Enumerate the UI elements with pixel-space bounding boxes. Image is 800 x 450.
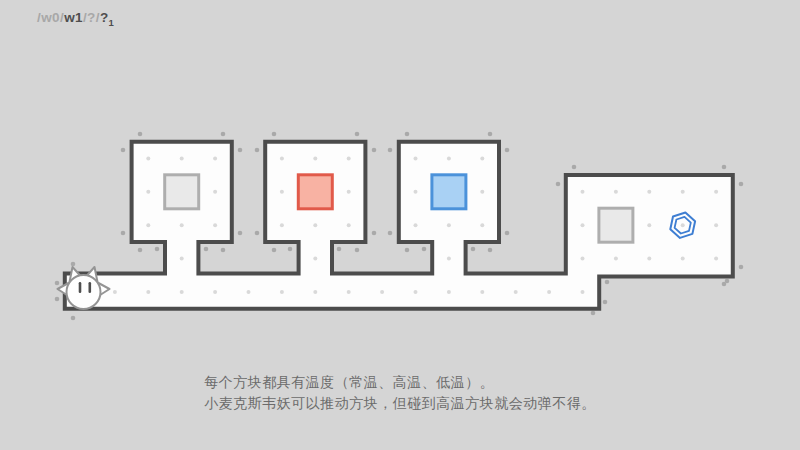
grid-dot-outer [603, 300, 608, 305]
grid-dot-outer [121, 148, 126, 153]
breadcrumb: /w0/w1/?/?1 [37, 10, 114, 28]
demon-eye-left [79, 282, 82, 293]
grid-dot-outer [372, 231, 377, 236]
grid-dot-floor [146, 190, 150, 194]
grid-dot-floor [714, 223, 718, 227]
grid-dot-floor [180, 156, 184, 160]
grid-dot-floor [447, 223, 451, 227]
grid-dot-floor [347, 156, 351, 160]
grid-dot-outer [471, 247, 476, 252]
grid-dot-outer [722, 165, 727, 170]
grid-dot-outer [505, 231, 510, 236]
breadcrumb-segment-current: ? [100, 10, 109, 25]
grid-dot-floor [714, 257, 718, 261]
grid-dot-outer [272, 248, 277, 253]
grid-dot-outer [238, 148, 243, 153]
tutorial-text: 每个方块都具有温度（常温、高温、低温）。 小麦克斯韦妖可以推动方块，但碰到高温方… [0, 372, 800, 414]
grid-dot-floor [347, 290, 351, 294]
block-normal-1[interactable] [165, 175, 199, 209]
grid-dot-floor [547, 290, 551, 294]
grid-dot-floor [414, 156, 418, 160]
grid-dot-outer [71, 262, 76, 267]
grid-dot-outer [739, 182, 744, 187]
grid-dot-floor [614, 190, 618, 194]
grid-dot-floor [681, 257, 685, 261]
grid-dot-outer [255, 148, 260, 153]
grid-dot-floor [347, 223, 351, 227]
grid-dot-outer [221, 132, 226, 137]
grid-dot-outer [422, 247, 427, 252]
grid-dot-floor [647, 190, 651, 194]
grid-dot-outer [405, 132, 410, 137]
grid-dot-floor [280, 190, 284, 194]
grid-dot-outer [725, 279, 730, 284]
grid-dot-floor [414, 190, 418, 194]
grid-dot-outer [55, 281, 60, 286]
grid-dot-floor [714, 190, 718, 194]
grid-dot-outer [238, 231, 243, 236]
grid-dot-floor [113, 290, 117, 294]
grid-dot-floor [213, 156, 217, 160]
grid-dot-outer [138, 132, 143, 137]
grid-dot-floor [681, 223, 685, 227]
block-normal-2[interactable] [599, 208, 633, 242]
grid-dot-outer [556, 182, 561, 187]
grid-dot-outer [155, 247, 160, 252]
grid-dot-floor [581, 223, 585, 227]
grid-dot-outer [605, 280, 610, 285]
grid-dot-outer [138, 248, 143, 253]
grid-dot-floor [380, 290, 384, 294]
grid-dot-outer [121, 231, 126, 236]
breadcrumb-segment-current-sub: 1 [109, 17, 115, 28]
grid-dot-floor [647, 223, 651, 227]
grid-dot-floor [146, 290, 150, 294]
grid-dot-floor [313, 223, 317, 227]
grid-dot-outer [388, 148, 393, 153]
grid-dot-outer [488, 248, 493, 253]
grid-dot-outer [355, 132, 360, 137]
grid-dot-floor [146, 156, 150, 160]
grid-dot-floor [280, 290, 284, 294]
grid-dot-outer [591, 311, 596, 316]
grid-dot-floor [514, 290, 518, 294]
grid-dot-floor [213, 223, 217, 227]
grid-dot-floor [347, 190, 351, 194]
grid-dot-floor [480, 290, 484, 294]
grid-dot-floor [647, 257, 651, 261]
grid-dot-outer [355, 248, 360, 253]
grid-dot-floor [146, 223, 150, 227]
grid-dot-floor [180, 290, 184, 294]
grid-dot-floor [614, 257, 618, 261]
grid-dot-floor [280, 223, 284, 227]
grid-dot-floor [447, 156, 451, 160]
grid-dot-floor [180, 223, 184, 227]
demon-body [67, 275, 101, 309]
block-hot[interactable] [298, 175, 332, 209]
block-cold[interactable] [432, 175, 466, 209]
grid-dot-outer [221, 248, 226, 253]
tutorial-line-1: 每个方块都具有温度（常温、高温、低温）。 [204, 372, 596, 393]
grid-dot-outer [739, 265, 744, 270]
grid-dot-floor [313, 257, 317, 261]
grid-dot-floor [414, 290, 418, 294]
breadcrumb-segment-q: /?/ [83, 10, 100, 25]
breadcrumb-segment-w1: w1 [64, 10, 83, 25]
grid-dot-floor [581, 257, 585, 261]
grid-dot-floor [213, 190, 217, 194]
grid-dot-outer [272, 132, 277, 137]
grid-dot-outer [405, 248, 410, 253]
tutorial-line-2: 小麦克斯韦妖可以推动方块，但碰到高温方块就会动弹不得。 [204, 393, 596, 414]
grid-dot-floor [681, 190, 685, 194]
demon-eye-right [89, 282, 92, 293]
grid-dot-outer [337, 247, 342, 252]
grid-dot-outer [505, 148, 510, 153]
grid-dot-floor [213, 290, 217, 294]
grid-dot-floor [447, 290, 451, 294]
grid-dot-floor [414, 223, 418, 227]
grid-dot-floor [313, 156, 317, 160]
grid-dot-floor [581, 190, 585, 194]
breadcrumb-segment-w0: /w0/ [37, 10, 64, 25]
grid-dot-outer [55, 297, 60, 302]
grid-dot-outer [372, 148, 377, 153]
grid-dot-floor [480, 190, 484, 194]
grid-dot-floor [180, 257, 184, 261]
grid-dot-outer [388, 231, 393, 236]
grid-dot-outer [255, 231, 260, 236]
grid-dot-outer [204, 247, 209, 252]
grid-dot-floor [313, 290, 317, 294]
grid-dot-floor [581, 290, 585, 294]
grid-dot-outer [288, 247, 293, 252]
grid-dot-floor [480, 156, 484, 160]
grid-dot-floor [280, 156, 284, 160]
grid-dot-outer [71, 316, 76, 321]
grid-dot-outer [488, 132, 493, 137]
grid-dot-outer [572, 165, 577, 170]
grid-dot-floor [480, 223, 484, 227]
grid-dot-floor [447, 257, 451, 261]
grid-dot-floor [247, 290, 251, 294]
